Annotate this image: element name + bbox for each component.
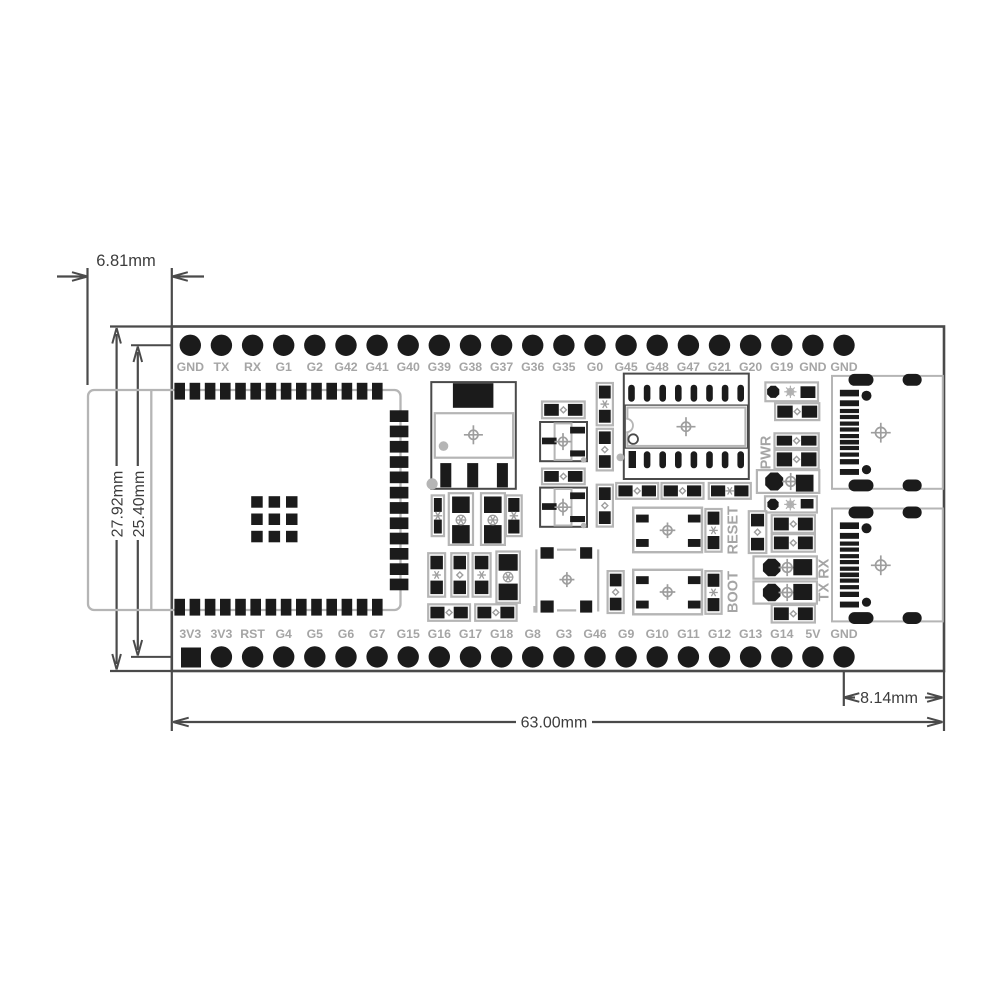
svg-text:G12: G12 <box>708 627 731 641</box>
svg-text:G2: G2 <box>307 360 324 374</box>
svg-text:G8: G8 <box>524 627 541 641</box>
svg-text:G9: G9 <box>618 627 635 641</box>
svg-text:G14: G14 <box>770 627 793 641</box>
svg-text:G7: G7 <box>369 627 386 641</box>
svg-text:G4: G4 <box>275 627 292 641</box>
svg-text:G41: G41 <box>365 360 388 374</box>
svg-text:G17: G17 <box>459 627 482 641</box>
svg-text:G40: G40 <box>397 360 420 374</box>
svg-text:GND: GND <box>799 360 826 374</box>
svg-text:RST: RST <box>240 627 265 641</box>
svg-text:5V: 5V <box>805 627 821 641</box>
svg-text:PWR: PWR <box>759 435 775 469</box>
svg-text:8.14mm: 8.14mm <box>860 690 918 707</box>
svg-text:GND: GND <box>830 360 857 374</box>
svg-text:G10: G10 <box>646 627 669 641</box>
svg-text:GND: GND <box>177 360 204 374</box>
svg-text:27.92mm: 27.92mm <box>109 471 126 538</box>
svg-text:RESET: RESET <box>726 506 742 554</box>
svg-text:63.00mm: 63.00mm <box>521 715 588 732</box>
svg-text:G38: G38 <box>459 360 482 374</box>
svg-text:TX: TX <box>214 360 231 374</box>
svg-text:G3: G3 <box>556 627 573 641</box>
svg-text:G36: G36 <box>521 360 544 374</box>
svg-text:G15: G15 <box>397 627 420 641</box>
svg-text:G37: G37 <box>490 360 513 374</box>
svg-text:G35: G35 <box>552 360 575 374</box>
svg-text:G47: G47 <box>677 360 700 374</box>
svg-text:G5: G5 <box>307 627 324 641</box>
svg-text:GND: GND <box>830 627 857 641</box>
svg-text:G1: G1 <box>275 360 292 374</box>
svg-text:25.40mm: 25.40mm <box>131 471 148 538</box>
svg-text:G6: G6 <box>338 627 355 641</box>
svg-text:G46: G46 <box>583 627 606 641</box>
svg-text:BOOT: BOOT <box>726 571 742 613</box>
svg-text:G11: G11 <box>677 627 700 641</box>
svg-text:G20: G20 <box>739 360 762 374</box>
svg-text:3V3: 3V3 <box>179 627 201 641</box>
svg-text:G21: G21 <box>708 360 731 374</box>
svg-text:TX RX: TX RX <box>817 558 833 601</box>
svg-text:G16: G16 <box>428 627 451 641</box>
svg-text:3V3: 3V3 <box>210 627 232 641</box>
svg-text:G19: G19 <box>770 360 793 374</box>
svg-text:6.81mm: 6.81mm <box>96 252 156 270</box>
svg-text:RX: RX <box>244 360 262 374</box>
svg-text:G0: G0 <box>587 360 604 374</box>
svg-text:G13: G13 <box>739 627 762 641</box>
svg-text:G39: G39 <box>428 360 451 374</box>
svg-text:G45: G45 <box>614 360 637 374</box>
svg-text:G18: G18 <box>490 627 513 641</box>
svg-text:G48: G48 <box>646 360 669 374</box>
svg-text:G42: G42 <box>334 360 357 374</box>
